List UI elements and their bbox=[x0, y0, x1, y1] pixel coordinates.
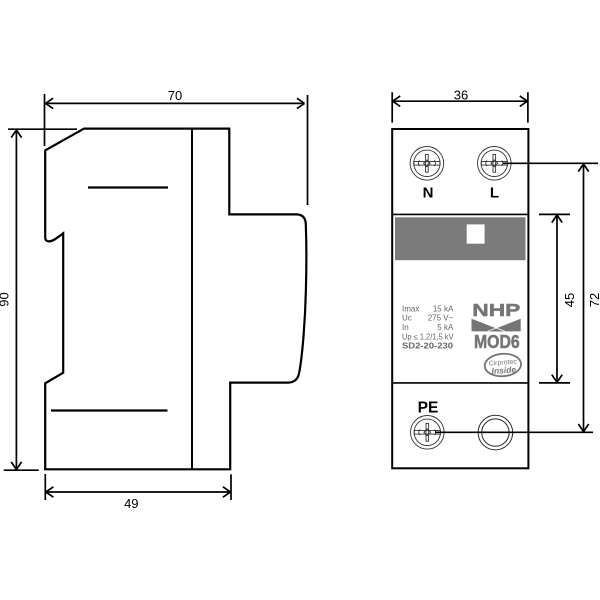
svg-text:NHP: NHP bbox=[472, 300, 520, 320]
svg-text:15 kA: 15 kA bbox=[433, 304, 454, 313]
svg-text:275 V~: 275 V~ bbox=[428, 314, 454, 323]
svg-text:L: L bbox=[490, 184, 499, 201]
svg-text:72: 72 bbox=[587, 293, 600, 307]
svg-text:90: 90 bbox=[0, 292, 12, 306]
svg-text:70: 70 bbox=[168, 88, 182, 103]
svg-text:PE: PE bbox=[418, 399, 439, 416]
svg-text:Imax: Imax bbox=[402, 304, 419, 313]
svg-text:Up ≤ 1,2/1,5 kV: Up ≤ 1,2/1,5 kV bbox=[402, 332, 454, 341]
svg-text:Uc: Uc bbox=[402, 314, 412, 323]
svg-text:Inside: Inside bbox=[491, 364, 516, 376]
svg-text:SD2-20-230: SD2-20-230 bbox=[402, 342, 454, 351]
svg-text:45: 45 bbox=[562, 293, 577, 307]
svg-text:36: 36 bbox=[454, 88, 468, 103]
svg-text:49: 49 bbox=[124, 496, 138, 511]
svg-text:5 kA: 5 kA bbox=[437, 323, 454, 332]
svg-text:MOD6: MOD6 bbox=[474, 332, 520, 352]
svg-text:In: In bbox=[402, 323, 409, 332]
svg-text:N: N bbox=[423, 184, 434, 201]
